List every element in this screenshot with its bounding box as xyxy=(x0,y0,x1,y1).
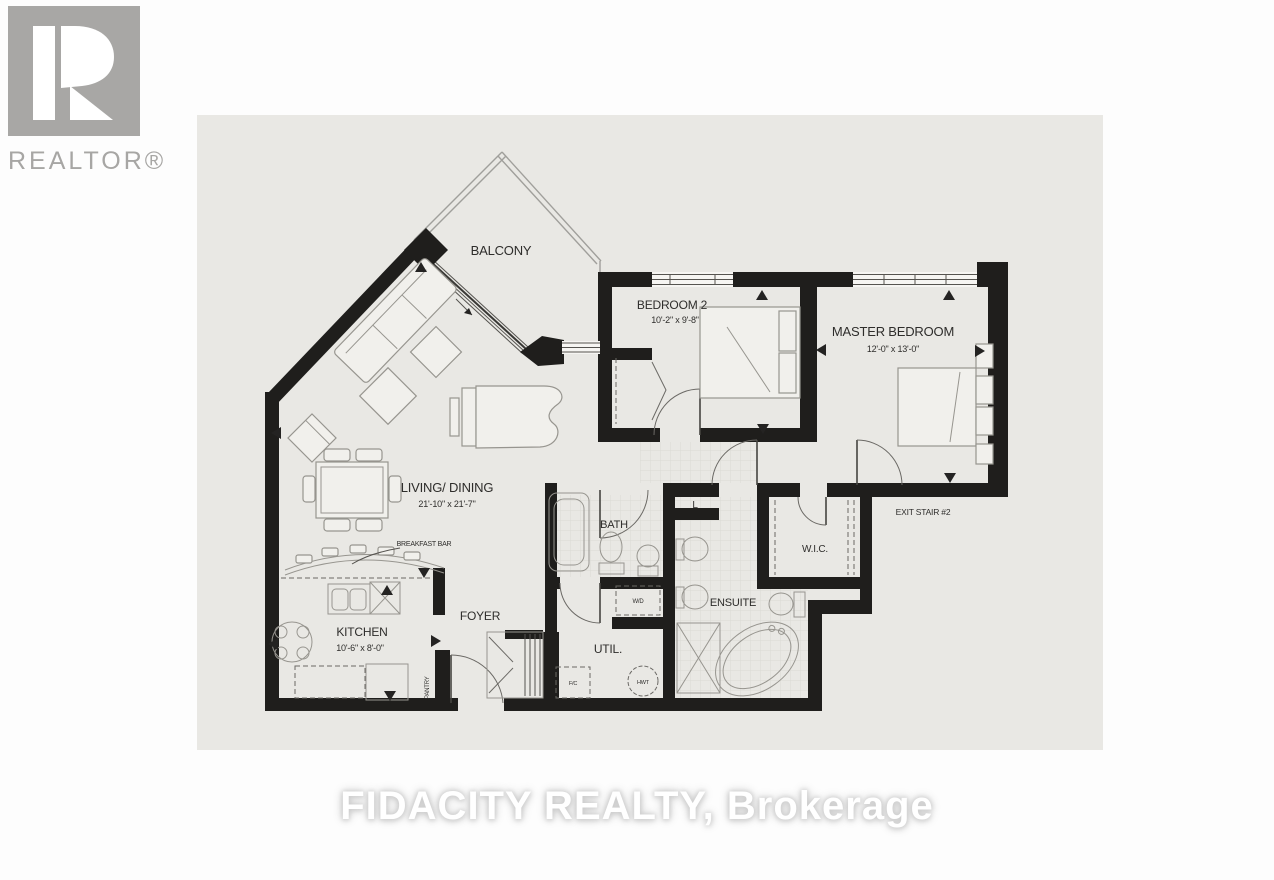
kitchen-dims: 10'-6" x 8'-0" xyxy=(336,643,384,653)
watermark-text: FIDACITY REALTY, Brokerage xyxy=(340,784,934,828)
pillow xyxy=(976,407,993,435)
floorplan-page: REALTOR® xyxy=(0,0,1274,880)
master-label: MASTER BEDROOM xyxy=(832,324,954,339)
nightstand xyxy=(976,444,993,464)
floor-plan: BALCONY BEDROOM 2 10'-2" x 9'-8" MASTER … xyxy=(0,0,1274,880)
pillow xyxy=(779,353,796,393)
pantry-label: PANTRY xyxy=(425,676,431,699)
bedroom2-furniture xyxy=(700,307,800,398)
grand-piano xyxy=(450,386,562,448)
hwt-label: HWT xyxy=(637,680,650,686)
bedroom2-dims: 10'-2" x 9'-8" xyxy=(651,315,699,325)
bedroom2-label: BEDROOM 2 xyxy=(637,298,708,312)
pillow xyxy=(779,311,796,351)
watermark: FIDACITY REALTY, Brokerage xyxy=(0,784,1274,829)
ensuite-label: ENSUITE xyxy=(710,597,756,609)
fridge-closet-label: F/C xyxy=(569,681,577,687)
bed xyxy=(898,368,976,446)
living-label: LIVING/ DINING xyxy=(401,480,494,495)
window-living xyxy=(562,341,600,354)
util-label: UTIL. xyxy=(594,642,622,656)
pillow xyxy=(976,376,993,404)
foyer-label: FOYER xyxy=(460,609,501,623)
wic-label: W.I.C. xyxy=(802,544,828,555)
kitchen-label: KITCHEN xyxy=(336,625,387,639)
exit-stair-label: EXIT STAIR #2 xyxy=(896,507,951,517)
living-dims: 21'-10" x 21'-7" xyxy=(418,499,475,509)
window-bedroom2 xyxy=(652,272,733,287)
balcony-label: BALCONY xyxy=(471,243,532,258)
master-dims: 12'-0" x 13'-0" xyxy=(867,344,919,354)
washer-dryer-label: W/D xyxy=(632,599,644,605)
bath-label: BATH xyxy=(600,519,628,531)
breakfast-bar-label: BREAKFAST BAR xyxy=(397,541,452,548)
linen-label: L xyxy=(692,500,698,511)
window-master xyxy=(853,272,977,287)
